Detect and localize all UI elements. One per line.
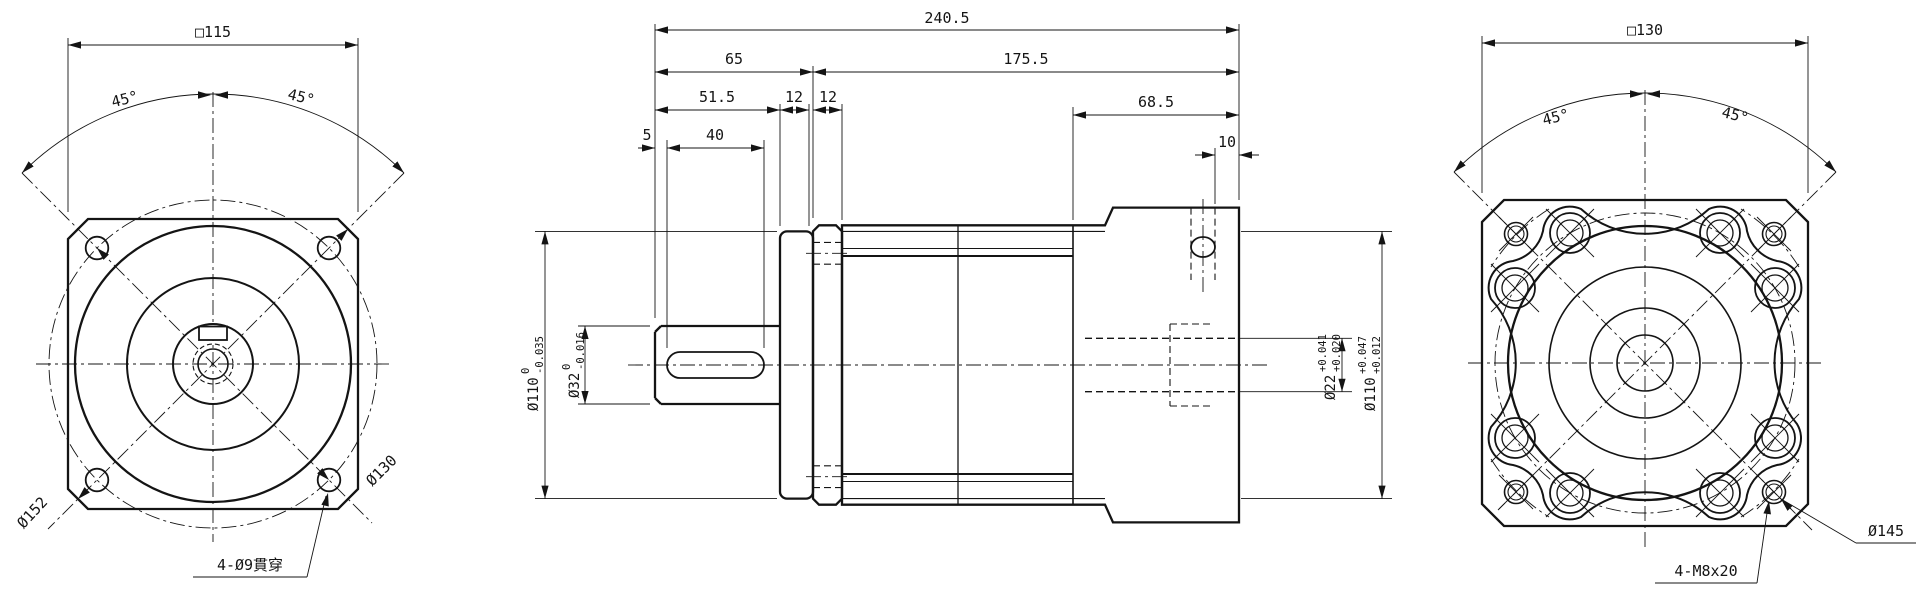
svg-text:+0.012: +0.012 [1371, 336, 1383, 374]
dim-key-offset: 5 [642, 126, 651, 144]
svg-text:Ø110: Ø110 [526, 377, 542, 411]
dim-plate-thickness: 12 [819, 88, 837, 106]
svg-text:Ø110: Ø110 [1363, 377, 1379, 411]
cad-drawing-canvas: □115 45° 45° Ø152 Ø130 4-Ø9貫穿 [0, 0, 1920, 614]
dim-shaft-length: 51.5 [699, 88, 735, 106]
svg-text:-0.035: -0.035 [534, 336, 546, 374]
svg-text:+0.047: +0.047 [1357, 336, 1369, 374]
svg-text:+0.041: +0.041 [1317, 334, 1329, 372]
dim-rear-bolt-circle: Ø145 [1868, 522, 1904, 540]
svg-text:-0.016: -0.016 [575, 332, 587, 370]
front-keyway [199, 327, 227, 341]
svg-text:Ø32: Ø32 [567, 373, 583, 398]
dim-total-length: 240.5 [924, 9, 969, 27]
dim-front-width: □115 [195, 23, 231, 41]
dim-key-length: 40 [706, 126, 724, 144]
dim-body-length: 175.5 [1003, 50, 1048, 68]
svg-text:0: 0 [561, 364, 573, 370]
svg-text:Ø22: Ø22 [1323, 375, 1339, 400]
technical-drawing: □115 45° 45° Ø152 Ø130 4-Ø9貫穿 [0, 0, 1920, 614]
dim-rear-holes-note: 4-M8x20 [1674, 562, 1737, 580]
svg-text:+0.020: +0.020 [1331, 334, 1343, 372]
dim-front-length: 65 [725, 50, 743, 68]
dim-ring-thickness: 12 [785, 88, 803, 106]
svg-text:0: 0 [520, 368, 532, 374]
dim-front-holes-note: 4-Ø9貫穿 [217, 556, 283, 574]
dim-adapter-length: 68.5 [1138, 93, 1174, 111]
dim-rear-width: □130 [1627, 21, 1663, 39]
dim-rear-offset: 10 [1218, 133, 1236, 151]
